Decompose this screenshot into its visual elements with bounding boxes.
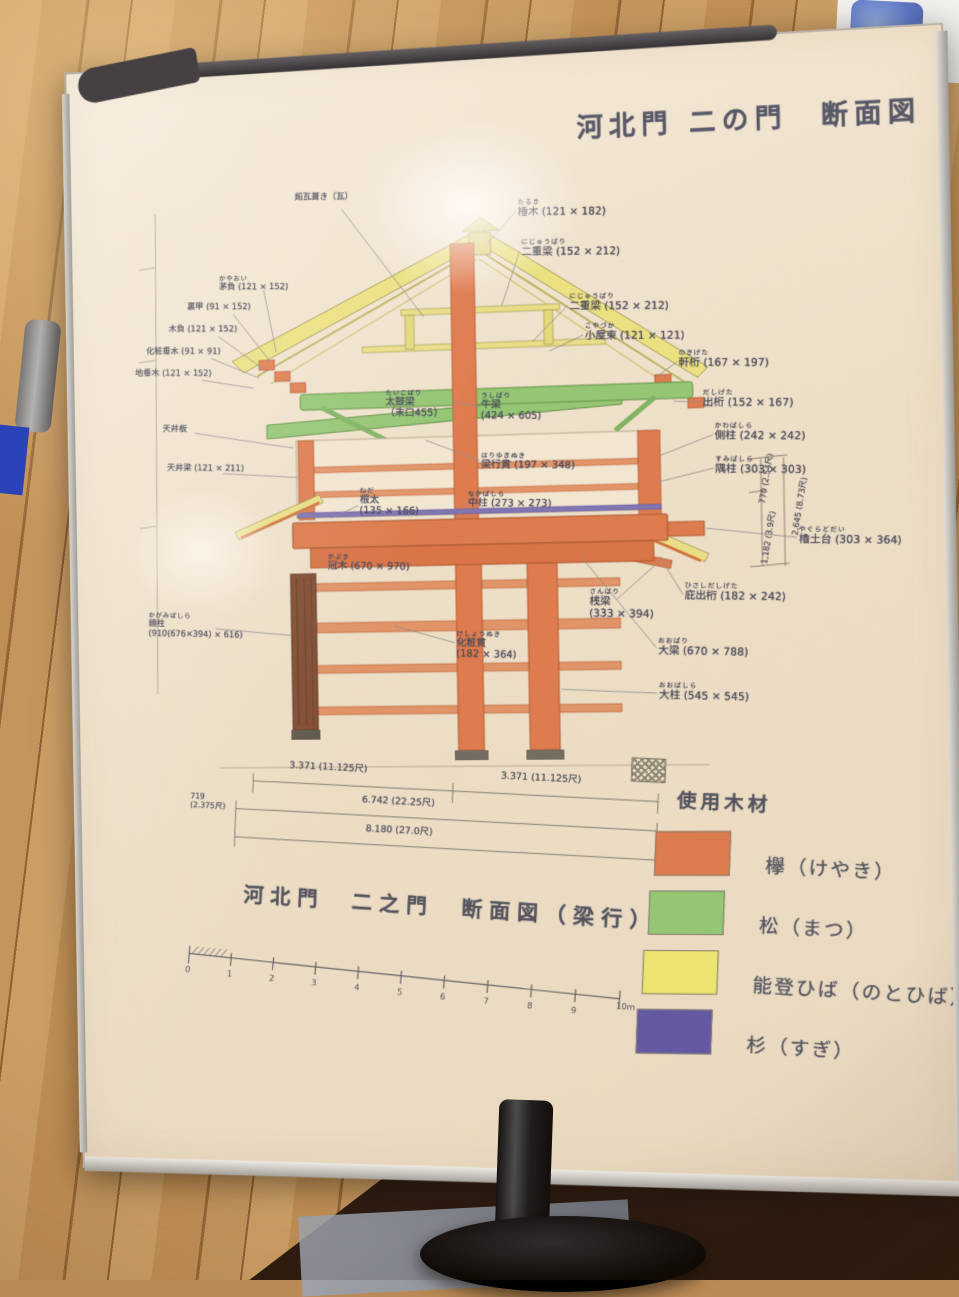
photo-of-sign: { "sign": { "title": "河北門 二の門 断面図", "cap… <box>0 0 959 1280</box>
legend-heading: 使用木材 <box>677 786 772 818</box>
scale-tick-label: 3 <box>311 978 317 988</box>
legend-chip-keyaki <box>654 831 731 876</box>
scale-tick-label: 8 <box>527 1001 533 1012</box>
legend-label-sugi: 杉（すぎ） <box>746 1030 856 1065</box>
legend-label-matsu: 松（まつ） <box>758 911 868 945</box>
legend-label-keyaki: 欅（けやき） <box>765 851 897 885</box>
scale-tick-label: 0 <box>185 965 191 975</box>
scale-tick-label: 6 <box>440 992 446 1002</box>
information-sign-panel: 河北門 二の門 断面図 <box>64 23 959 1188</box>
material-legend: 使用木材 欅（けやき）松（まつ）能登ひば（のとひば）杉（すぎ） <box>605 730 959 1095</box>
legend-chip-sugi <box>636 1009 713 1054</box>
sign-stand-base <box>420 1216 706 1292</box>
legend-chip-notohiba <box>642 950 719 995</box>
legend-chip-matsu <box>648 891 725 936</box>
legend-label-notohiba: 能登ひば（のとひば） <box>752 971 959 1012</box>
scale-tick-label: 7 <box>483 997 489 1008</box>
scale-tick-label: 5 <box>396 987 402 997</box>
scale-tick-label: 1 <box>227 969 233 979</box>
scale-tick-label: 9 <box>571 1006 577 1017</box>
scale-tick-label: 2 <box>269 974 275 984</box>
scale-tick-label: 4 <box>354 983 360 993</box>
foundation-hatch-symbol <box>631 757 666 783</box>
